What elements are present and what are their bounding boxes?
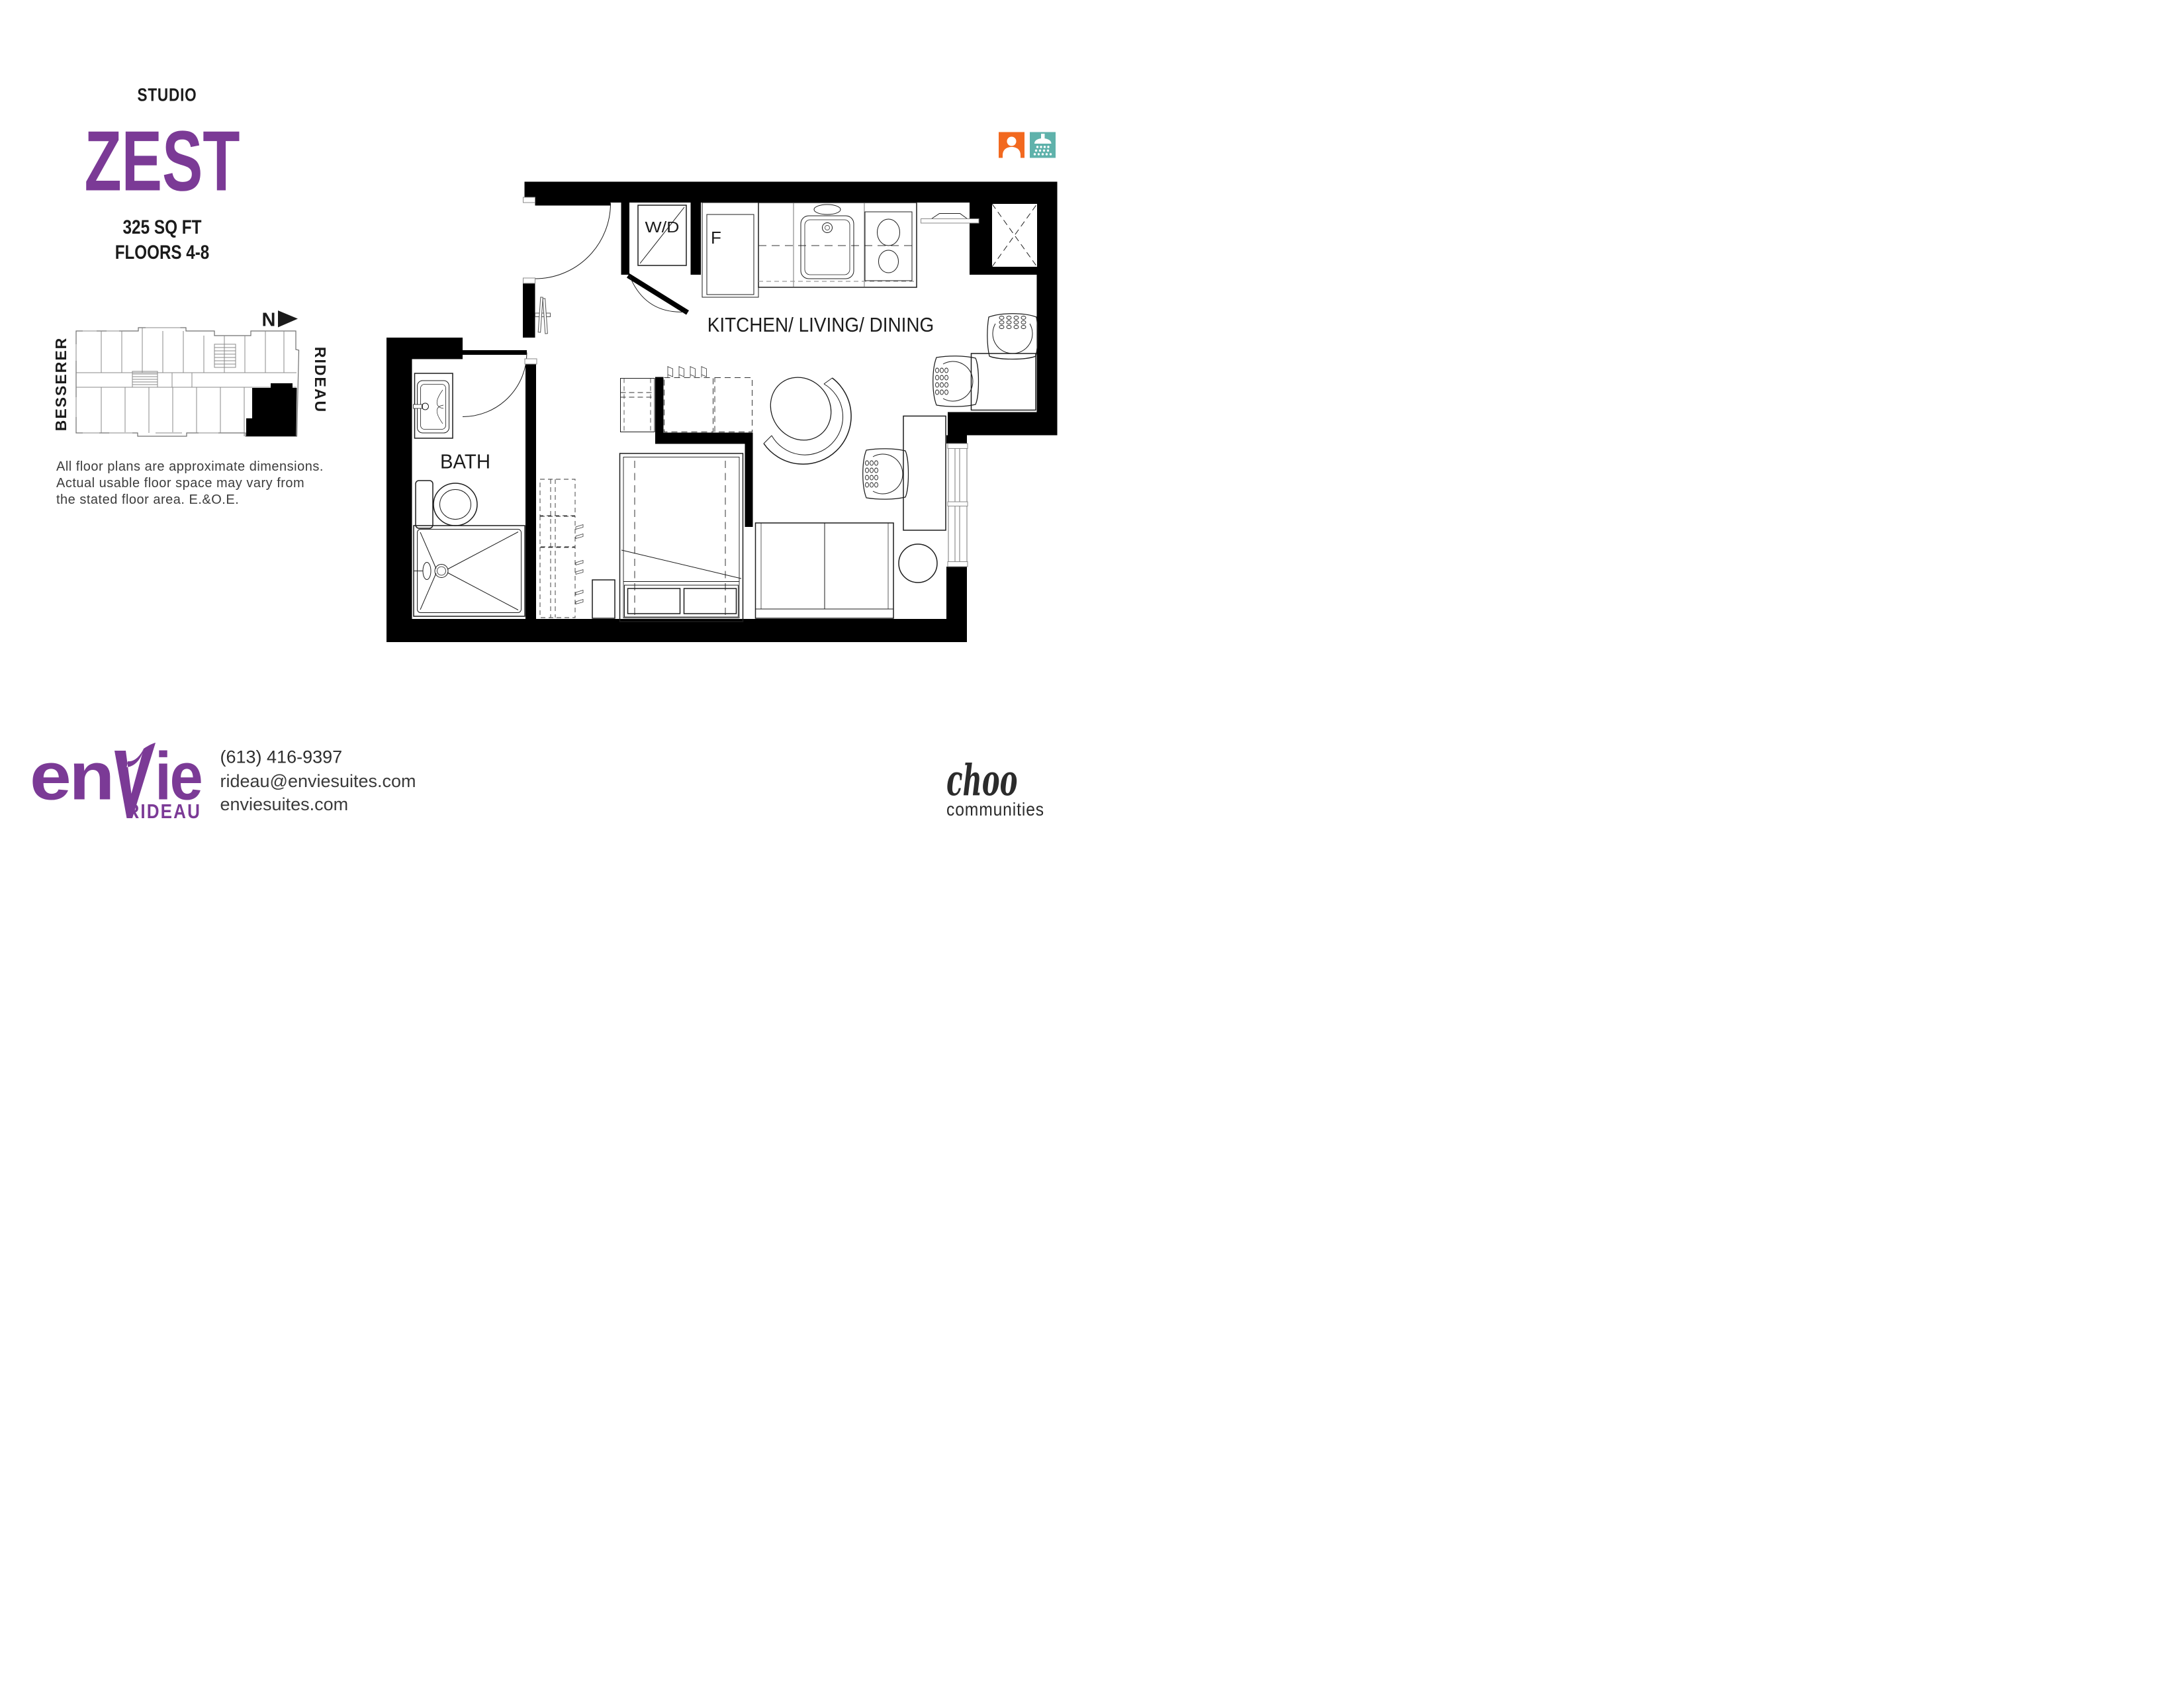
unit-floors-label: FLOORS 4-8: [115, 242, 210, 263]
north-arrow-triangle: [278, 310, 298, 328]
unit-name-title: ZEST: [85, 114, 240, 209]
contact-block: (613) 416-9397 rideau@enviesuites.com en…: [220, 747, 416, 815]
wardrobe: [664, 366, 752, 432]
contact-phone: (613) 416-9397: [220, 747, 343, 767]
valve-symbol: [535, 297, 551, 334]
contact-website[interactable]: enviesuites.com: [220, 794, 349, 814]
side-table: [899, 544, 937, 583]
keyplan: BESSERER RIDEAU: [52, 328, 329, 436]
floorplan-sheet: STUDIO ZEST 325 SQ FT FLOORS 4-8 N: [0, 0, 1092, 844]
fridge-label: F: [711, 228, 721, 248]
window: [948, 444, 968, 567]
washer-dryer-label: W/D: [645, 218, 680, 236]
envie-logo-text-en: en: [30, 738, 113, 814]
street-label-rideau: RIDEAU: [312, 347, 329, 413]
bath-label: BATH: [440, 450, 490, 473]
bath-sink: [414, 373, 453, 438]
kitchen-sink: [801, 205, 854, 279]
unit-area-label: 325 SQ FT: [123, 216, 202, 238]
disclaimer: All floor plans are approximate dimensio…: [56, 459, 324, 507]
choo-logo-script: choo: [946, 755, 1018, 806]
title-block: STUDIO ZEST 325 SQ FT FLOORS 4-8: [85, 85, 240, 264]
shaft: [992, 204, 1037, 267]
washer-dryer-closet: W/D: [627, 205, 689, 315]
main-room-label: KITCHEN/ LIVING/ DINING: [707, 313, 934, 336]
sofa: [756, 523, 894, 618]
entry-door: [523, 197, 611, 283]
shower: [414, 526, 525, 616]
nightstand: [592, 580, 615, 618]
person-icon: [999, 132, 1024, 158]
choo-logo-word: communities: [946, 799, 1044, 820]
street-label-besserer: BESSERER: [52, 337, 69, 432]
island-cabinet: [621, 379, 655, 432]
disclaimer-line-2: Actual usable floor space may vary from: [56, 476, 304, 491]
disclaimer-line-3: the stated floor area. E.&O.E.: [56, 492, 239, 507]
desk: [903, 416, 946, 531]
stove: [865, 212, 912, 281]
unit-type-label: STUDIO: [138, 85, 197, 105]
contact-email[interactable]: rideau@enviesuites.com: [220, 771, 416, 791]
envie-logo-sub: RIDEAU: [127, 800, 202, 823]
dining-chair-top: [987, 314, 1038, 359]
hanger-icons: [668, 366, 707, 377]
closet-shelves: [540, 479, 583, 618]
north-arrow: N: [262, 310, 298, 331]
hook-icons: [576, 525, 583, 604]
envie-logo: en ie RIDEAU: [30, 738, 201, 823]
footer: en ie RIDEAU (613) 416-9397 rideau@envie…: [30, 738, 1044, 823]
lounge-chair: [758, 365, 851, 464]
kitchen-counter: [758, 203, 917, 287]
floor-plan: W/D F: [387, 182, 1058, 643]
north-label: N: [262, 310, 276, 331]
fridge: F: [702, 203, 758, 297]
keyplan-unit-highlight: [246, 383, 297, 436]
bathroom: BATH: [414, 373, 525, 616]
legend-icons: [999, 132, 1056, 158]
toilet: [416, 481, 477, 528]
desk-chair: [863, 449, 909, 499]
choo-communities-logo: choo communities: [946, 755, 1044, 820]
bed: [620, 453, 743, 622]
disclaimer-line-1: All floor plans are approximate dimensio…: [56, 459, 324, 474]
dining-table: [972, 353, 1036, 410]
shower-icon: [1030, 132, 1056, 158]
